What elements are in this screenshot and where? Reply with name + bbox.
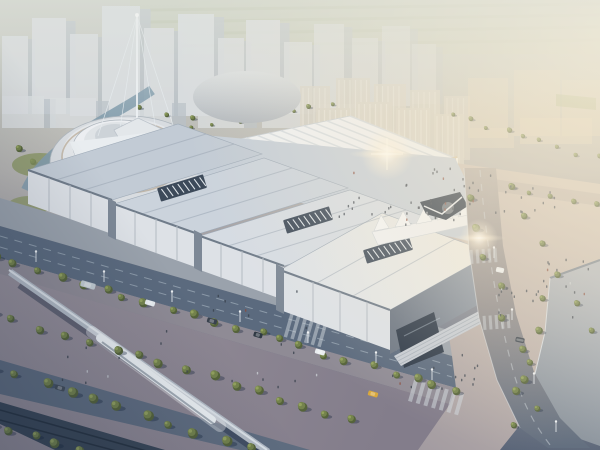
architectural-rendering: Exhibition Center Aerial Rendering — [0, 0, 600, 450]
rendering-canvas — [0, 0, 600, 450]
cool-shadow-overlay — [0, 0, 600, 450]
